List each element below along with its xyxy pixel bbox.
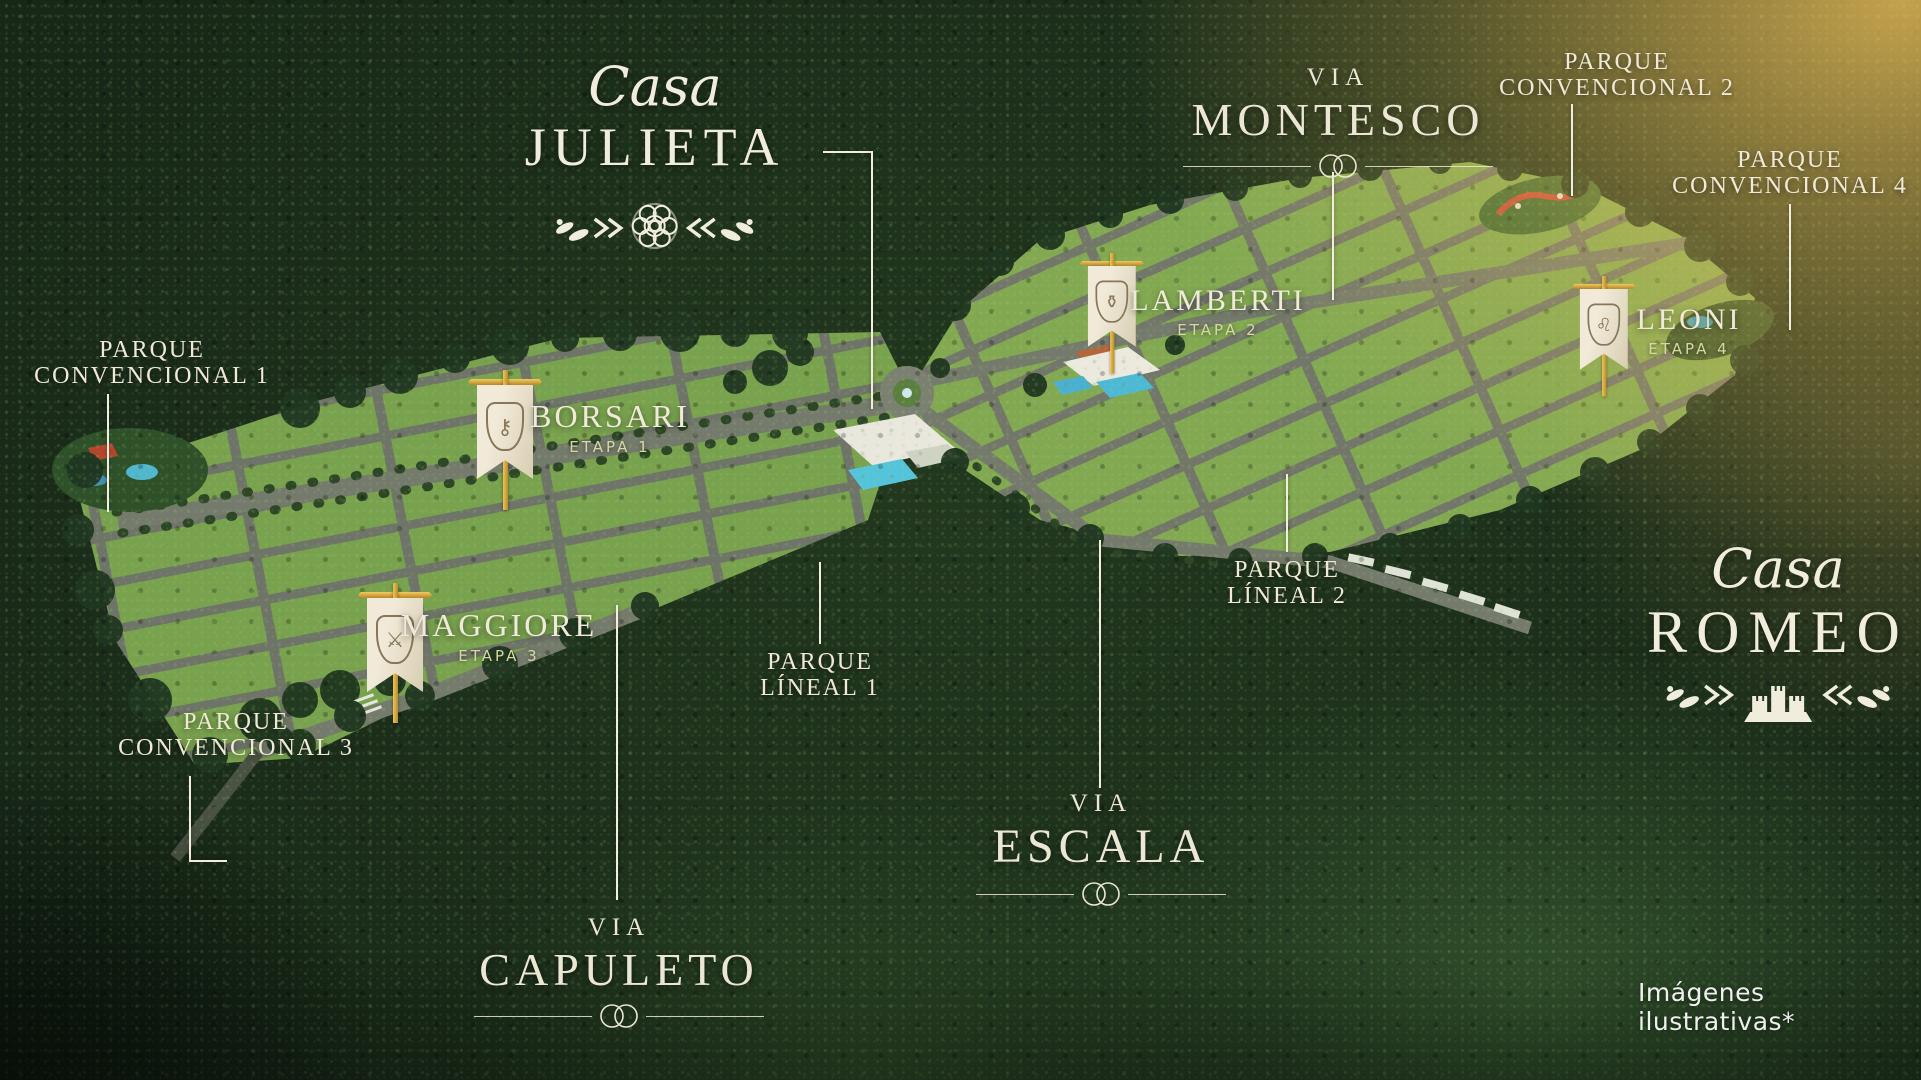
park-label-line: PARQUE xyxy=(1227,558,1347,584)
parque-convencional-2-label: PARQUE CONVENCIONAL 2 xyxy=(1499,50,1735,102)
parque-lineal-1-label: PARQUE LÍNEAL 1 xyxy=(760,650,880,702)
park-label-line: PARQUE xyxy=(34,338,270,364)
parque-convencional-4-label: PARQUE CONVENCIONAL 4 xyxy=(1672,148,1908,200)
etapa-leoni-stage: ETAPA 4 xyxy=(729,340,1921,1080)
rose-icon xyxy=(633,204,677,248)
park-label-line: LÍNEAL 2 xyxy=(1227,584,1347,610)
park-label-line: PARQUE xyxy=(760,650,880,676)
parque-lineal-2-label: PARQUE LÍNEAL 2 xyxy=(1227,558,1347,610)
disclaimer-text: Imágenes ilustrativas* xyxy=(1638,978,1921,1036)
via-montesco-prefix: VIA xyxy=(1183,64,1493,92)
leaf-flourish-icon xyxy=(689,219,755,243)
masterplan-canvas: Casa JULIETA xyxy=(0,0,1921,1080)
park-label-line: CONVENCIONAL 2 xyxy=(1499,76,1735,102)
via-montesco-name: MONTESCO xyxy=(1183,93,1493,146)
leader-line-parque-convencional-2 xyxy=(1571,104,1573,196)
casa-julieta-logo: Casa JULIETA xyxy=(525,60,786,273)
double-rings-icon xyxy=(1311,151,1365,181)
etapa-leoni-name: LEONI xyxy=(729,303,1921,337)
via-montesco-label: VIA MONTESCO xyxy=(1183,64,1493,181)
park-label-line: PARQUE xyxy=(1672,148,1908,174)
parque-convencional-1-label: PARQUE CONVENCIONAL 1 xyxy=(34,338,270,390)
park-label-line: PARQUE xyxy=(118,710,354,736)
parque-convencional-3-label: PARQUE CONVENCIONAL 3 xyxy=(118,710,354,762)
park-label-line: PARQUE xyxy=(1499,50,1735,76)
casa-julieta-name: JULIETA xyxy=(525,116,786,178)
leader-line-montesco xyxy=(1332,172,1334,300)
park-label-line: LÍNEAL 1 xyxy=(760,676,880,702)
leaf-flourish-icon xyxy=(555,219,621,243)
leader-line-julieta xyxy=(823,151,873,153)
park-label-line: CONVENCIONAL 1 xyxy=(34,364,270,390)
etapa-leoni-label: LEONI ETAPA 4 xyxy=(729,303,1921,1080)
park-label-line: CONVENCIONAL 4 xyxy=(1672,174,1908,200)
park-label-line: CONVENCIONAL 3 xyxy=(118,736,354,762)
julieta-ornament xyxy=(555,182,755,268)
casa-julieta-script: Casa xyxy=(525,60,786,114)
